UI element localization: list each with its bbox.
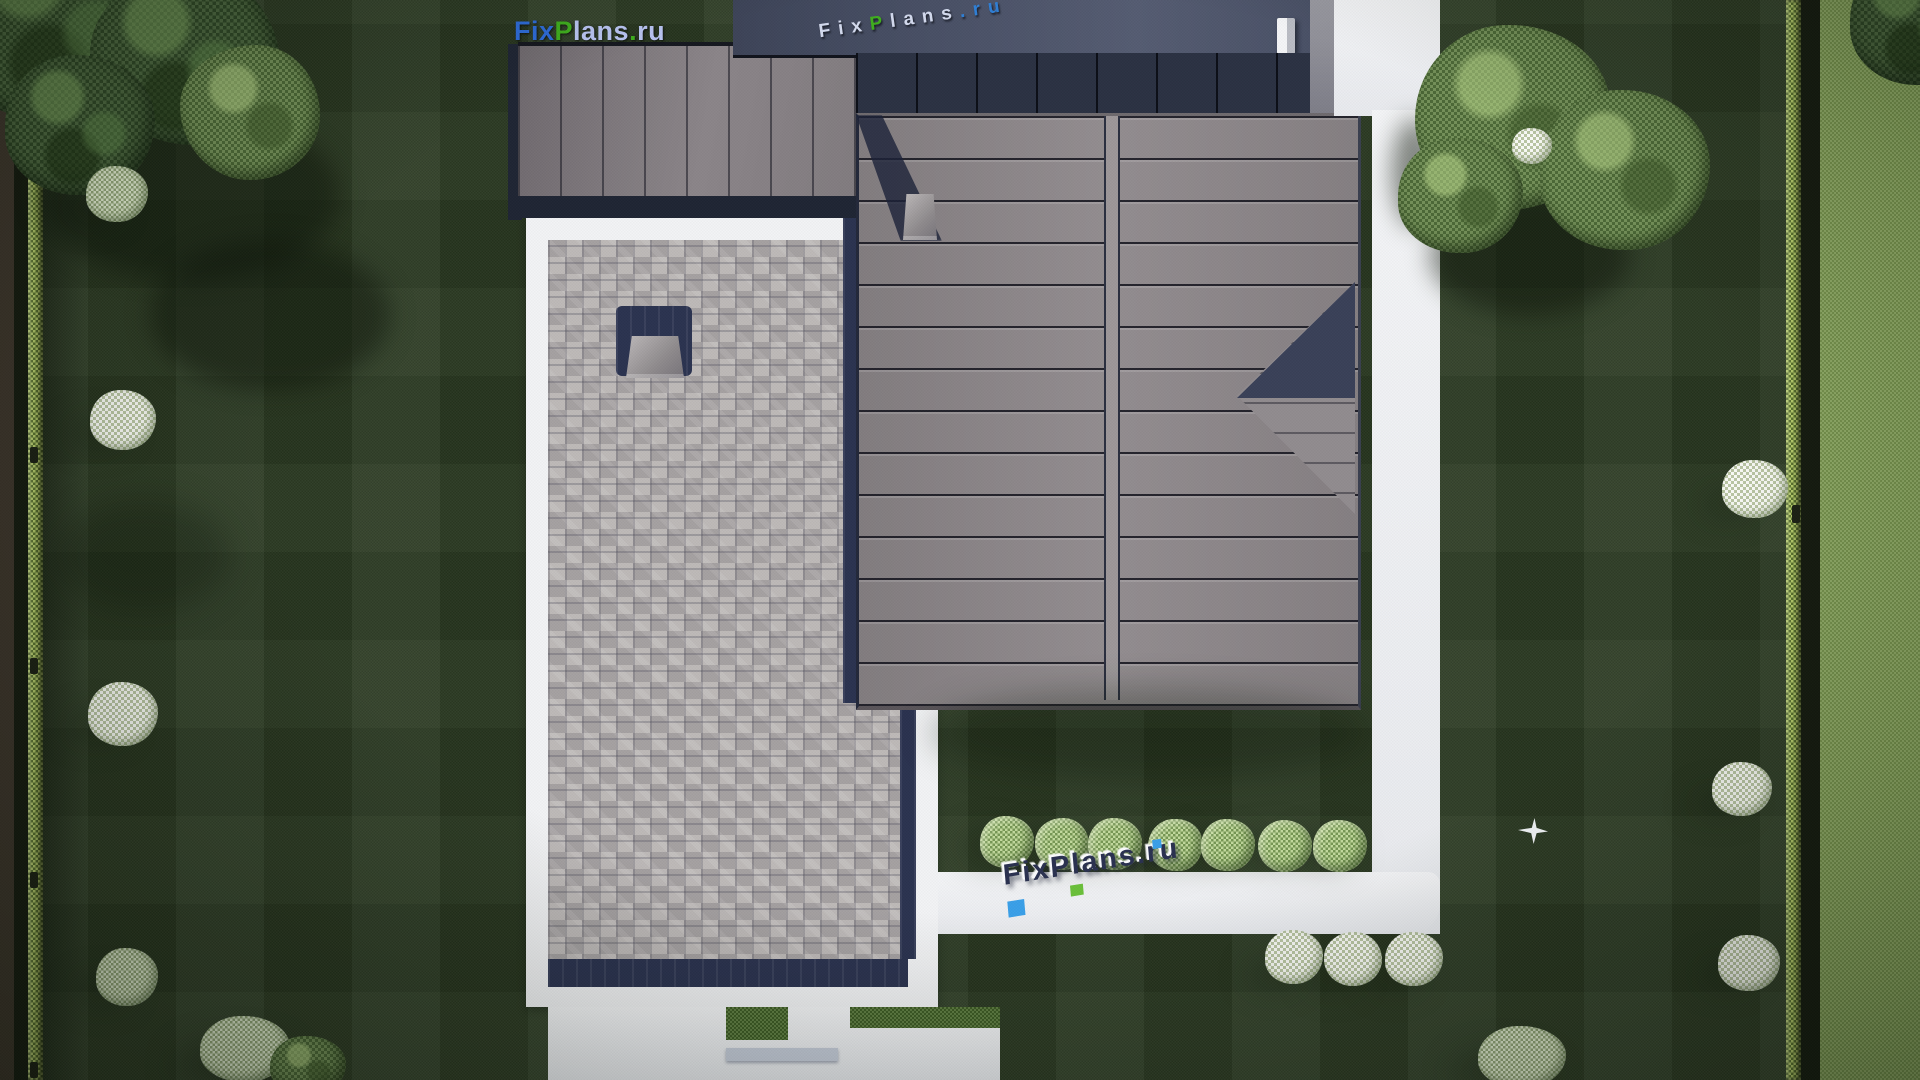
lawn-shadow-left	[60, 500, 230, 610]
bush-left-3	[88, 682, 158, 746]
watermark-blue-block	[1007, 899, 1025, 918]
logo-text-ru: ru	[637, 16, 665, 46]
tree-topright-c	[1398, 138, 1523, 253]
bush-left-1	[86, 166, 148, 222]
small-tree-7	[1313, 820, 1367, 872]
small-tree-5	[1201, 819, 1255, 871]
neighbor-lawn	[1820, 0, 1920, 1080]
main-roof-chimney	[903, 194, 937, 240]
bush-right-2	[1712, 762, 1772, 816]
patio-navy-bottom	[548, 959, 908, 987]
fence-gap-right	[1801, 0, 1822, 1080]
tree-topleft-d	[180, 45, 320, 180]
skylight-cap	[626, 336, 684, 378]
watermark-blue-dot	[1152, 839, 1162, 849]
roof-watermark-ru: ru	[971, 0, 1009, 21]
flower-bush-3	[1385, 932, 1443, 986]
fence-post-right	[1792, 505, 1800, 523]
bush-right-3	[1718, 935, 1780, 991]
entry-step	[726, 1048, 838, 1061]
logo-text-lans: lans	[573, 16, 629, 46]
site-plan-render: FixPlans.ru FixPlans.ru FixPlans.ru	[0, 0, 1920, 1080]
garage-fascia	[1310, 0, 1336, 115]
logo-text-dot: .	[629, 16, 637, 46]
entry-grass-gap-1	[726, 1007, 788, 1040]
logo-text-p: P	[555, 16, 574, 46]
bush-left-4	[96, 948, 158, 1006]
west-wing-roof	[518, 42, 858, 206]
fence-post-left-1	[30, 447, 38, 463]
entry-grass-gap-2	[850, 1007, 1000, 1028]
main-roof-ridge	[1106, 116, 1118, 700]
logo-text-fix: Fix	[514, 16, 555, 46]
scene-layer	[0, 0, 1920, 1080]
fixplans-logo: FixPlans.ru	[514, 16, 665, 47]
flying-bird	[1518, 818, 1548, 844]
fence-post-left-2	[30, 658, 38, 674]
bush-right-1	[1722, 460, 1788, 518]
garage-roof-south	[856, 53, 1336, 119]
flower-bush-2	[1324, 932, 1382, 986]
garage-chimney	[1277, 18, 1295, 54]
tree-topright-b	[1540, 90, 1710, 250]
bush-cluster-bottomleft-2	[270, 1036, 346, 1080]
roof-south-shadow	[930, 688, 1370, 778]
hedge-right	[1786, 0, 1801, 1080]
bush-left-2	[90, 390, 156, 450]
tree-shadow-topleft-2	[150, 240, 390, 390]
fence-post-left-3	[30, 872, 38, 888]
west-wing-eave	[518, 196, 858, 218]
small-tree-6	[1258, 820, 1312, 872]
flower-bush-1	[1265, 930, 1323, 984]
watermark-green-block	[1070, 884, 1084, 897]
fence-post-left-4	[30, 1062, 38, 1078]
bush-cluster-bottomright	[1478, 1026, 1566, 1080]
bush-topright-white	[1512, 128, 1552, 164]
patio-navy-right	[900, 700, 916, 959]
